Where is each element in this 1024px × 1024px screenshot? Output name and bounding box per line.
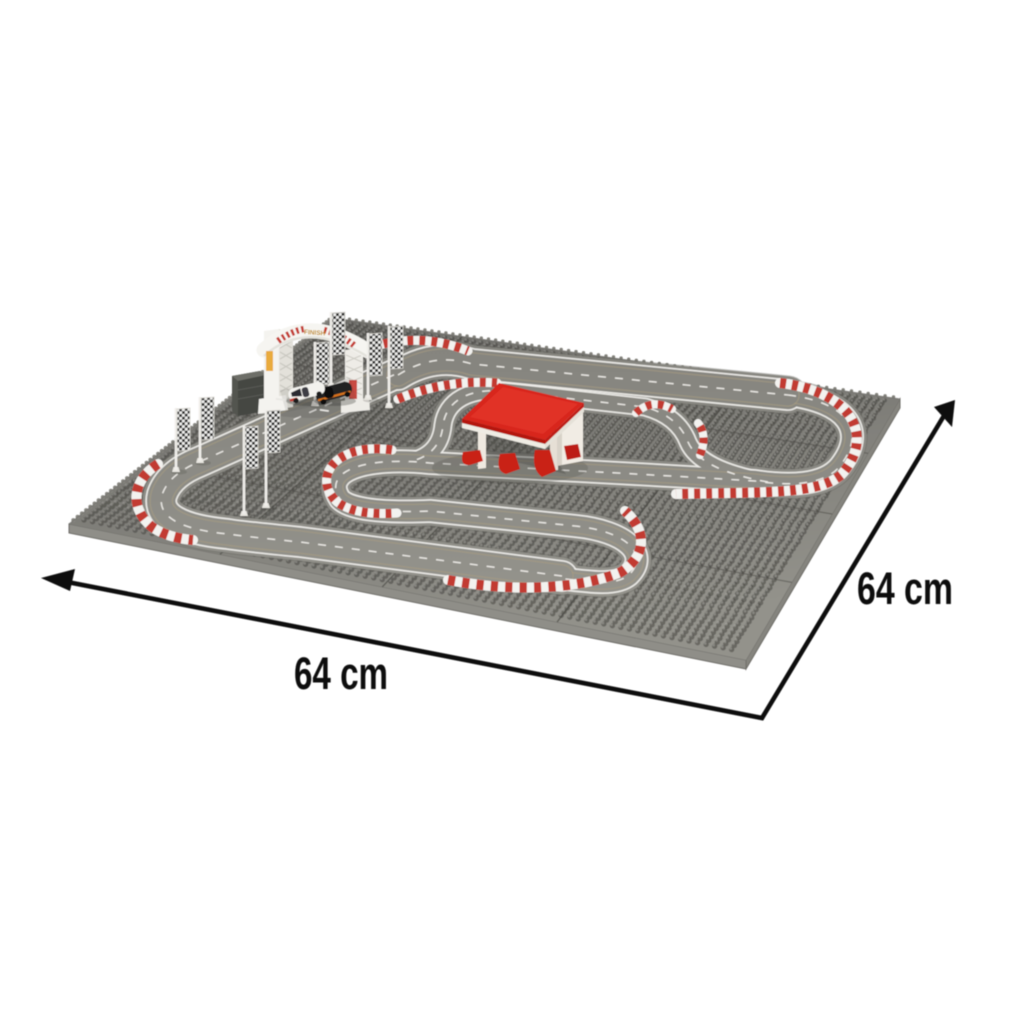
svg-text:64 cm: 64 cm — [294, 648, 388, 699]
svg-text:64 cm: 64 cm — [857, 563, 953, 614]
